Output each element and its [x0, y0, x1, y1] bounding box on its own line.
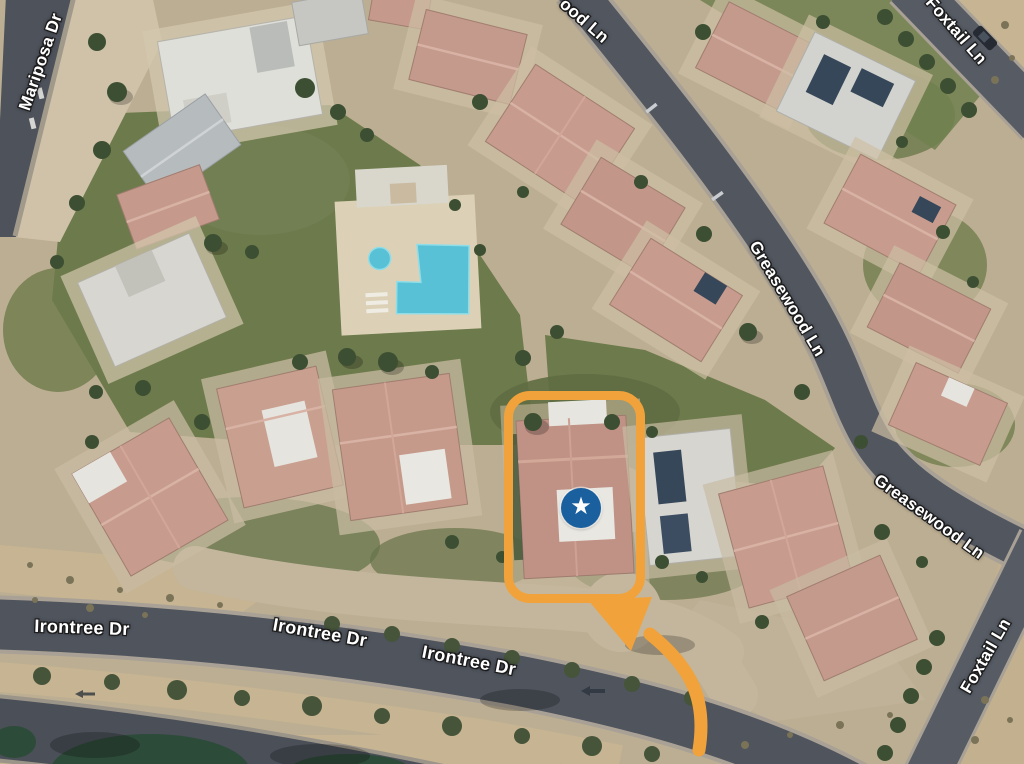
saved-place-star-marker[interactable]: ★	[561, 488, 601, 528]
house-shape	[318, 359, 483, 536]
star-icon: ★	[570, 495, 592, 519]
satellite-imagery	[0, 0, 1024, 764]
satellite-map[interactable]: Mariposa Dr ood Ln Foxtail Ln Greasewood…	[0, 0, 1024, 764]
